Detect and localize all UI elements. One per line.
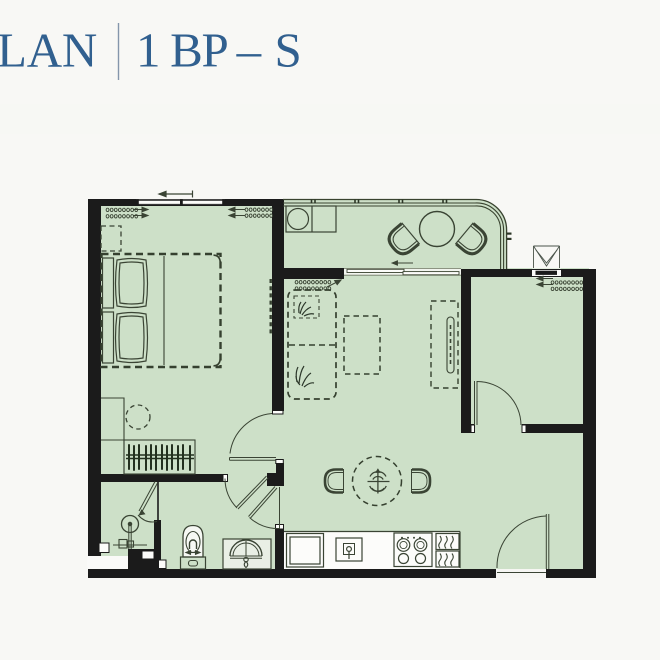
svg-text:S: S (275, 23, 302, 78)
svg-text:LAN: LAN (0, 23, 97, 78)
svg-text:1 BP –: 1 BP – (136, 23, 262, 78)
